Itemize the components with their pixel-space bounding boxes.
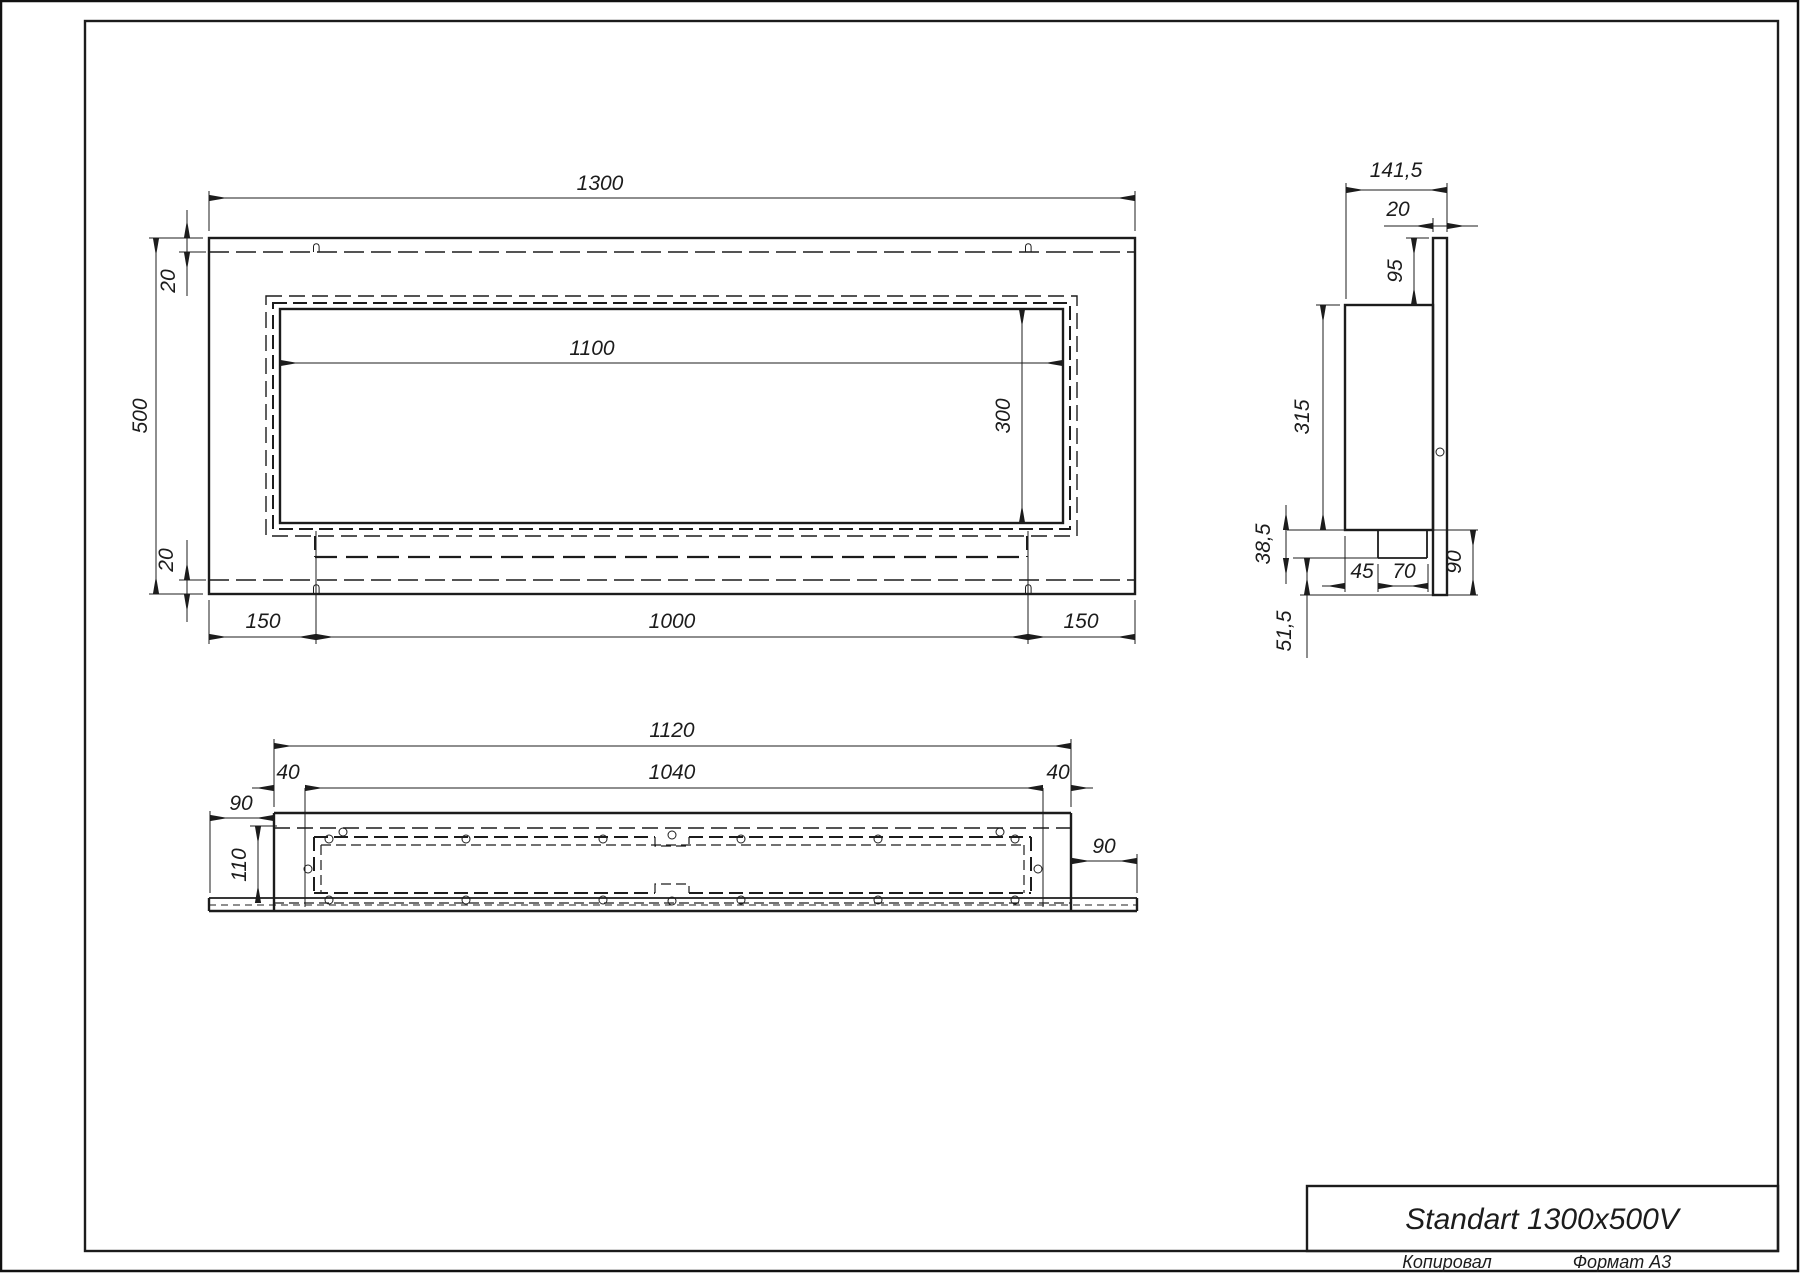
dim-label: 20	[155, 548, 178, 573]
dim-side-body-height: 315	[1291, 305, 1340, 530]
dim-label: 95	[1384, 259, 1407, 283]
dim-label: 1300	[577, 172, 624, 195]
dim-label: 315	[1291, 399, 1314, 434]
dim-label: 150	[1063, 610, 1098, 633]
drawing-title: Standart 1300x500V	[1405, 1203, 1682, 1236]
drawing-canvas: 1300 500 20 20 1100	[0, 0, 1800, 1273]
dim-bottom-overhang-right: 90	[1072, 835, 1137, 893]
front-hidden-opening-edge-1	[273, 303, 1070, 529]
dim-label: 500	[129, 398, 152, 433]
image-border	[1, 1, 1798, 1271]
front-view: 1300 500 20 20 1100	[129, 172, 1135, 644]
title-block: Standart 1300x500V Копировал Формат А3	[1307, 1186, 1778, 1272]
dim-label: 1040	[649, 761, 696, 784]
dim-label: 70	[1392, 560, 1416, 583]
dim-label: 45	[1350, 560, 1374, 583]
dim-front-bottom-chain: 150 1000 150	[209, 531, 1135, 644]
dim-label: 1100	[569, 337, 614, 360]
drawing-frame	[85, 21, 1778, 1251]
footer-copied-label: Копировал	[1402, 1252, 1492, 1272]
dim-side-top-to-body: 95	[1384, 238, 1429, 305]
dim-label: 40	[1046, 761, 1070, 784]
front-opening	[280, 309, 1063, 523]
dim-label: 38,5	[1252, 523, 1275, 564]
dim-label: 110	[228, 848, 251, 882]
dim-bottom-body-depth: 110	[228, 826, 277, 903]
dim-label: 150	[245, 610, 280, 633]
dim-front-opening-width: 1100	[280, 337, 1063, 363]
dim-label: 1120	[649, 719, 694, 742]
dim-front-bottom-inset: 20	[155, 540, 206, 622]
dim-bottom-inner-chain: 1040 40 40	[252, 761, 1093, 788]
dim-label: 20	[157, 269, 180, 294]
dim-side-bottom-gap: 51,5	[1273, 558, 1307, 658]
dim-front-total-width: 1300	[209, 172, 1135, 231]
dim-front-opening-height: 300	[992, 309, 1022, 523]
dim-side-step-height: 38,5	[1252, 505, 1286, 584]
dim-label: 90	[1092, 835, 1116, 858]
side-hole	[1436, 448, 1444, 456]
side-body	[1345, 305, 1433, 530]
dim-side-step-offsets: 45 70	[1322, 536, 1428, 592]
side-front-panel	[1433, 238, 1447, 595]
dim-label: 20	[1385, 198, 1410, 221]
bottom-view: 1120 1040 40 40 90 110 90	[209, 719, 1137, 911]
dim-label: 90	[1443, 550, 1466, 574]
dim-label: 1000	[649, 610, 696, 633]
dim-label: 141,5	[1370, 159, 1423, 182]
dim-label: 51,5	[1273, 610, 1296, 651]
dim-front-top-inset: 20	[157, 210, 206, 296]
dim-label: 300	[992, 398, 1015, 433]
dim-side-panel-thickness: 20	[1384, 198, 1478, 232]
footer-format-label: Формат А3	[1573, 1252, 1672, 1272]
front-hidden-opening-edge-2	[266, 296, 1077, 536]
side-view: 141,5 20 95 315 38,	[1252, 159, 1478, 658]
dim-label: 90	[229, 792, 253, 815]
dim-label: 40	[276, 761, 300, 784]
drawing-page: 1300 500 20 20 1100	[0, 0, 1800, 1273]
bottom-hidden-tray-inner	[321, 845, 1024, 893]
